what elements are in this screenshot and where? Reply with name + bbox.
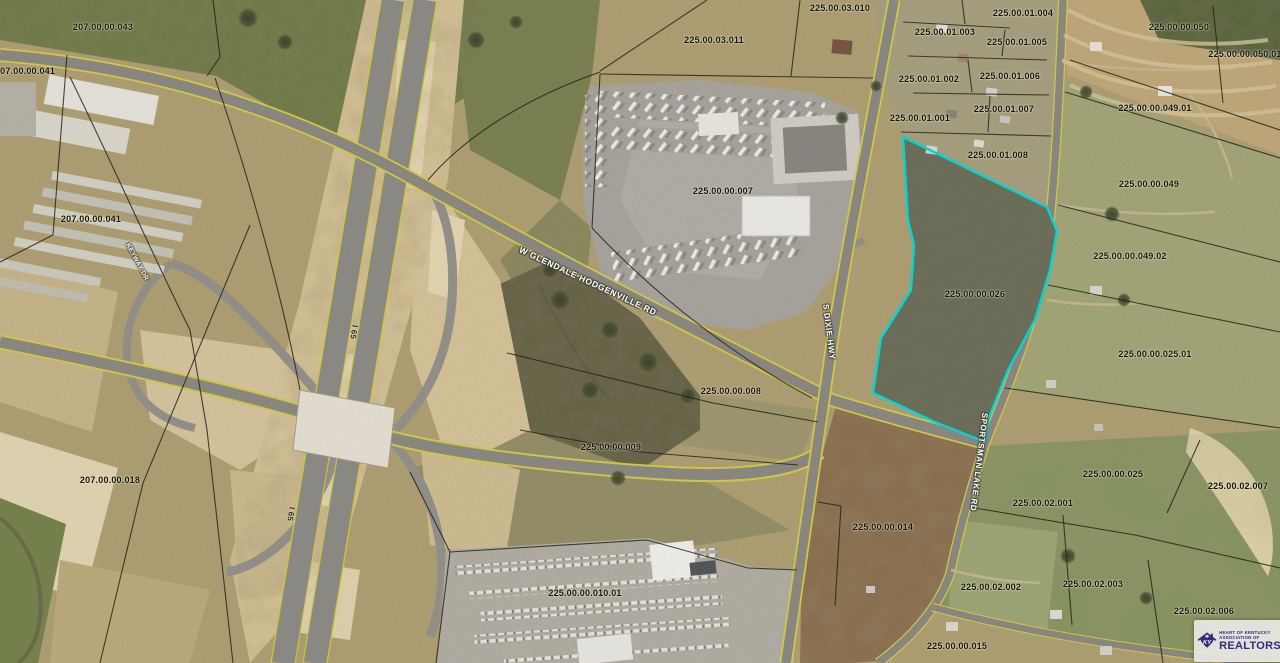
parcel-label: 225.00.01.006 <box>980 71 1040 81</box>
parcel-label: 225.00.03.010 <box>810 3 870 13</box>
parcel-label: 225.00.01.004 <box>993 8 1053 18</box>
realtor-logo: KY HEART OF KENTUCKY ASSOCIATION OF REAL… <box>1194 620 1280 662</box>
parcel-label: 225.00.01.007 <box>974 104 1034 114</box>
parcel-label: 225.00.01.003 <box>915 27 975 37</box>
parcel-label: 225.00.00.049.02 <box>1093 251 1166 261</box>
parcel-label: 225.00.00.009 <box>581 442 641 452</box>
parcel-label: 225.00.00.010.01 <box>548 588 621 598</box>
parcel-label: 225.00.00.025.01 <box>1118 349 1191 359</box>
parcel-label: 225.00.02.002 <box>961 582 1021 592</box>
parcel-label: 207.00.00.041 <box>61 214 121 224</box>
parcel-label: 225.00.01.002 <box>899 74 959 84</box>
parcel-label: 225.00.00.050.01 <box>1208 49 1280 59</box>
parcel-label: 225.00.00.007 <box>693 186 753 196</box>
parcel-label-highlighted: 225.00.00.026 <box>945 289 1005 299</box>
heart-house-icon: KY <box>1197 625 1217 657</box>
parcel-label: 207.00.00.043 <box>73 22 133 32</box>
parcel-label: 225.00.00.049.01 <box>1118 103 1191 113</box>
parcel-label: 225.00.02.007 <box>1208 481 1268 491</box>
parcel-label: 225.00.02.001 <box>1013 498 1073 508</box>
parcel-label: 225.00.00.008 <box>701 386 761 396</box>
satellite-imagery <box>0 0 1280 663</box>
aerial-parcel-map[interactable]: 207.00.00.043 207.00.00.041 207.00.00.04… <box>0 0 1280 663</box>
parcel-label: 207.00.00.018 <box>80 475 140 485</box>
logo-realtors-text: REALTORS <box>1219 640 1280 652</box>
parcel-label: 225.00.00.014 <box>853 522 913 532</box>
parcel-label: 225.00.01.005 <box>987 37 1047 47</box>
parcel-label: 225.00.00.050 <box>1149 22 1209 32</box>
parcel-label: 225.00.01.001 <box>890 113 950 123</box>
parcel-label: 225.00.03.011 <box>684 35 744 45</box>
parcel-label: 225.00.00.015 <box>927 641 987 651</box>
parcel-label: 225.00.00.025 <box>1083 469 1143 479</box>
parcel-label: 207.00.00.041 <box>0 66 55 76</box>
parcel-label: 225.00.02.003 <box>1063 579 1123 589</box>
parcel-label: 225.00.00.049 <box>1119 179 1179 189</box>
parcel-label: 225.00.01.008 <box>968 150 1028 160</box>
logo-state-abbr: KY <box>1203 640 1212 646</box>
parcel-label: 225.00.02.006 <box>1174 606 1234 616</box>
logo-org-name: REALTORS® <box>1219 641 1280 652</box>
